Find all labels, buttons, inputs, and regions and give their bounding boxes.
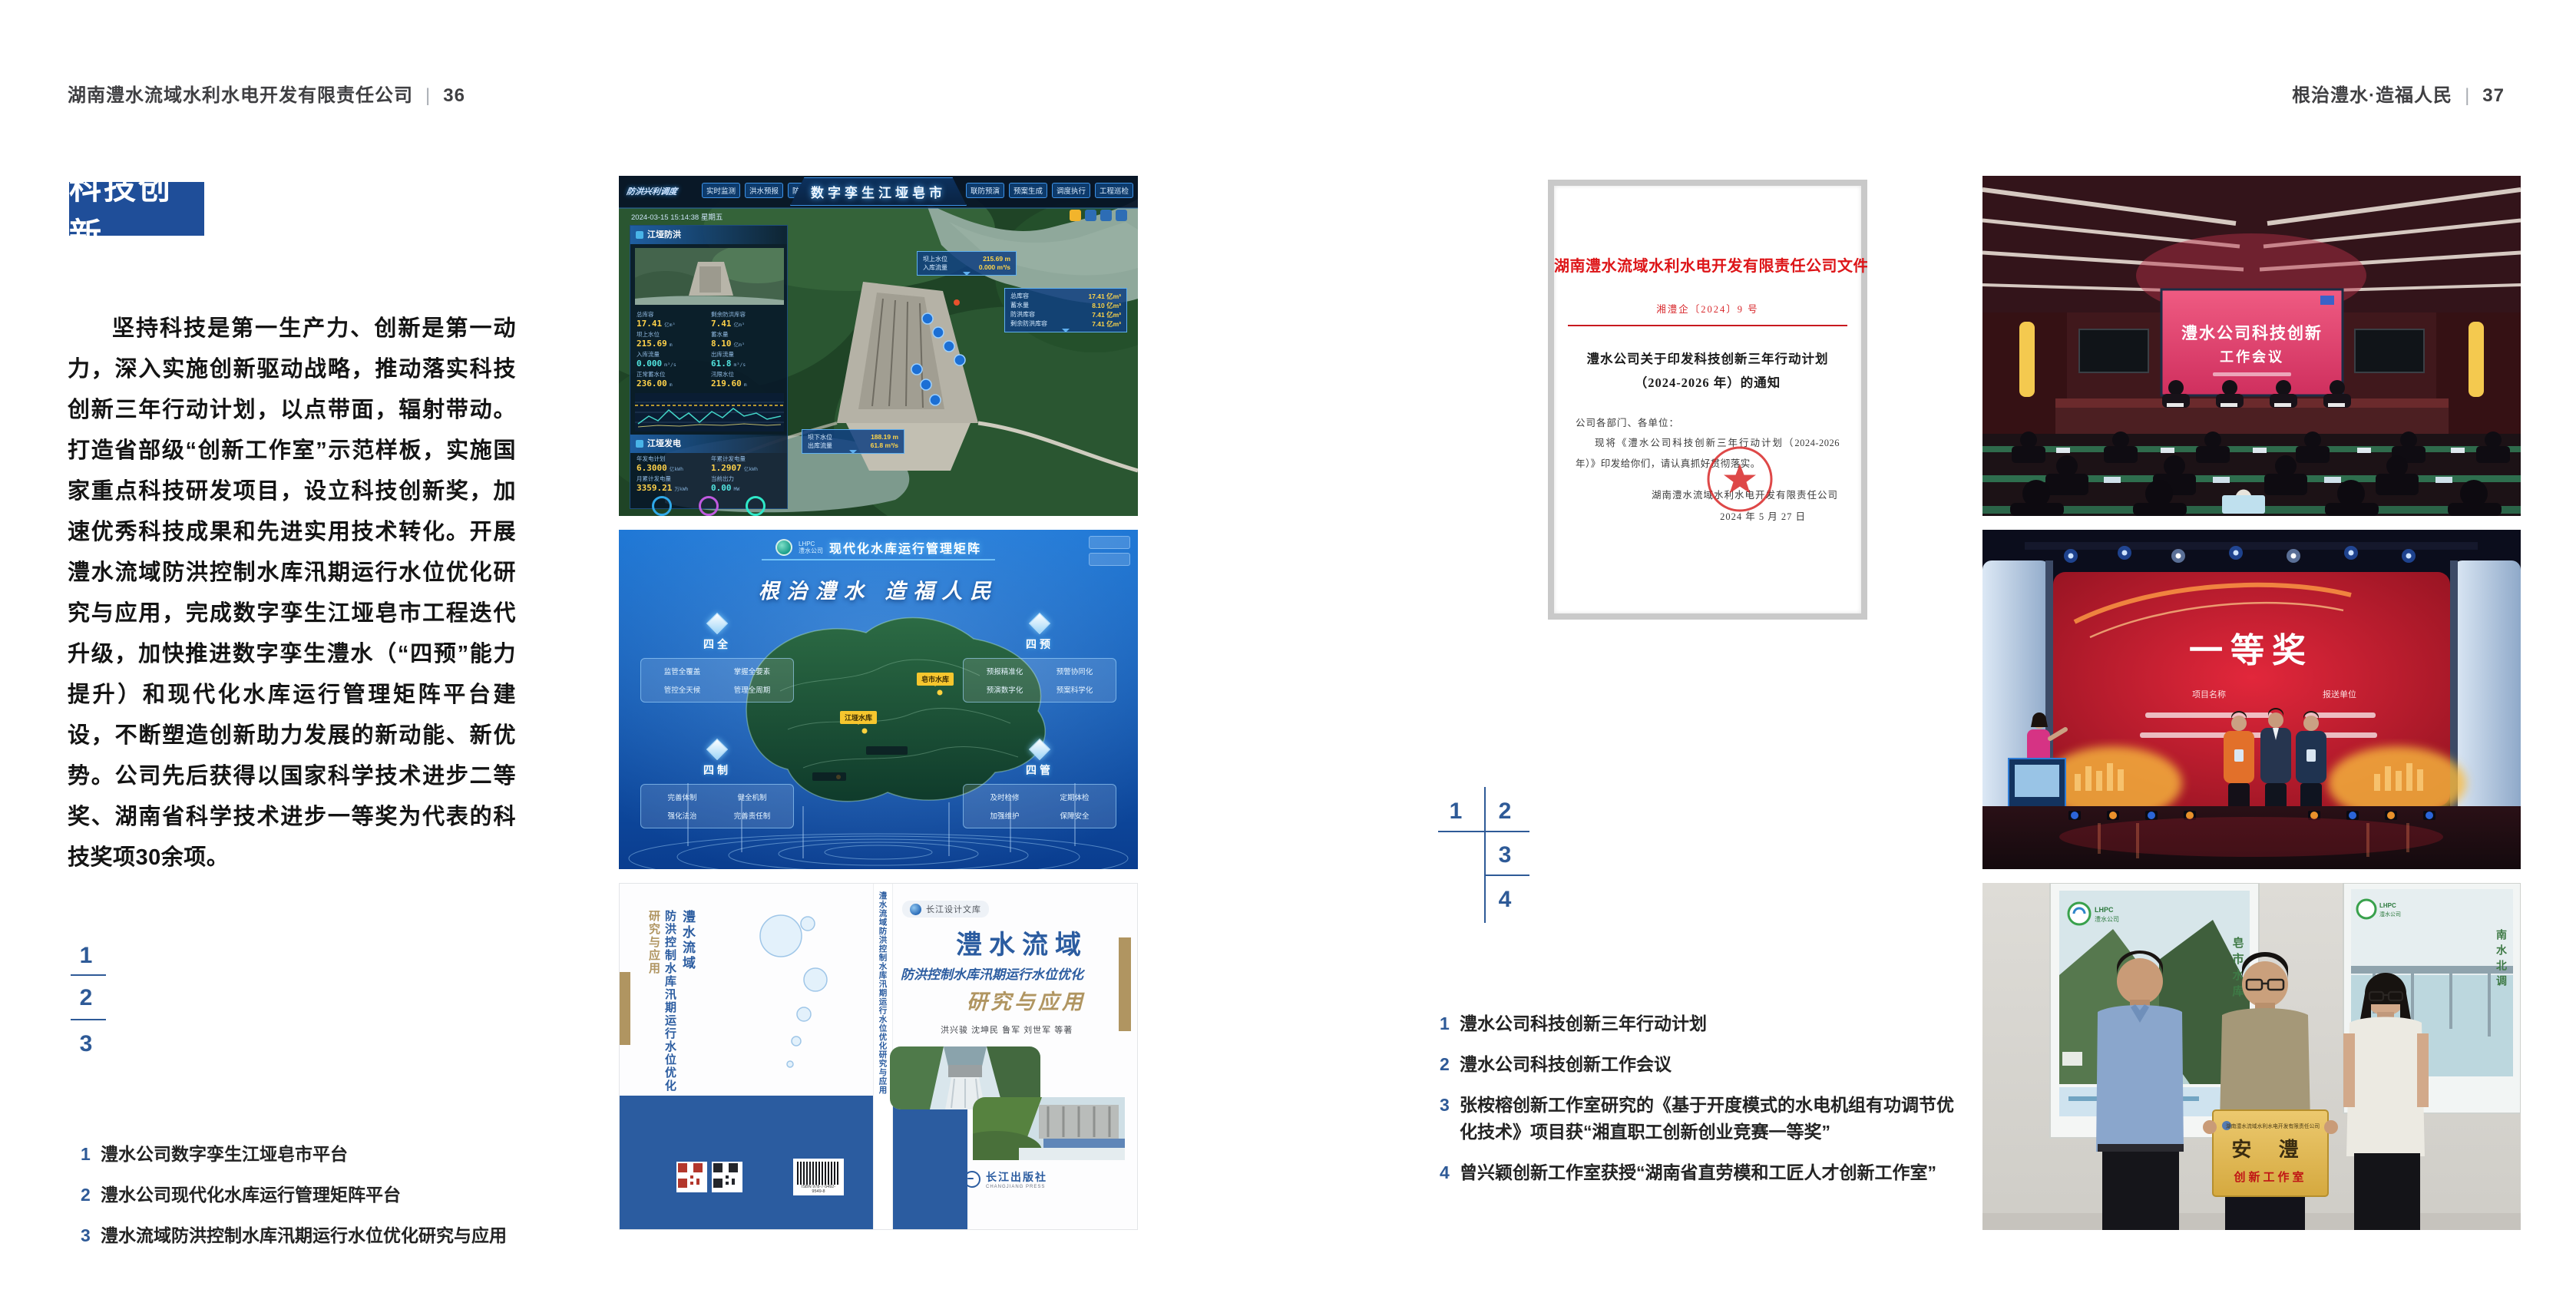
- power-stats: 年发电计划6.3000亿kWh 年累计发电量1.2907亿kWh 月累计发电量3…: [630, 453, 787, 494]
- stat-unit: m: [744, 382, 747, 388]
- book-photo-spillway-dam: [973, 1097, 1125, 1160]
- book-title-sub: 防洪控制水库汛期运行水位优化: [901, 964, 1083, 983]
- shield-icon: [1029, 739, 1050, 760]
- qr-code: [676, 1162, 707, 1192]
- group-item: 预报精准化: [970, 666, 1040, 676]
- publisher-logo: 长江出版社 CHANGJIANG PRESS: [964, 1169, 1047, 1189]
- series-logo-icon: [910, 904, 921, 915]
- stat-label: 当前出力: [711, 474, 781, 483]
- tab-joint-drill[interactable]: 联防预演: [966, 183, 1004, 198]
- barcode: ISBN 978-7-5492-9549-8: [793, 1159, 844, 1195]
- stat-label: 年发电计划: [637, 455, 706, 463]
- map-marker-small: [812, 772, 846, 781]
- tooltip-upstream: 坝上水位215.69 m 入库流量0.000 m³/s: [917, 251, 1017, 276]
- stat-value: 7.41: [711, 319, 732, 329]
- matrix-header: LHPC澧水公司 现代化水库运行管理矩阵: [762, 536, 995, 560]
- stat-unit: 万kWh: [674, 486, 688, 492]
- publisher-icon: [964, 1171, 980, 1188]
- document-red-header: 湖南澧水流域水利水电开发有限责任公司文件: [1554, 253, 1861, 276]
- caption-text: 澧水公司科技创新工作会议: [1460, 1051, 1957, 1078]
- photo-award-ceremony: 一等奖 项目名称 报送单位: [1982, 530, 2521, 869]
- dashboard-title: 数字孪生江垭皂市: [790, 177, 967, 206]
- poster-lhpc-abbr: LHPC: [2379, 902, 2396, 909]
- matrix-group-siyu: 四预 预报精准化 预警协同化 预演数字化 预案科学化: [963, 616, 1116, 703]
- dashboard-icon-cluster: [1070, 210, 1127, 221]
- group-item: 完善体制: [647, 792, 717, 802]
- document-number: 湘澧企〔2024〕9 号: [1554, 301, 1861, 316]
- figure-marker-3: 3: [1493, 843, 1517, 868]
- group-panel: 监管全覆盖 掌握全要素 管控全天候 管理全周期: [640, 658, 794, 703]
- stat-unit: 亿kWh: [670, 466, 683, 472]
- matrix-group-siguan: 四管 及时检修 定期体检 加强维护 保障安全: [963, 742, 1116, 828]
- group-item: 及时检修: [970, 792, 1040, 802]
- caption-text: 澧水公司数字孪生江垭皂市平台: [101, 1141, 348, 1168]
- user-icon[interactable]: [1070, 210, 1081, 221]
- group-item: 预案科学化: [1040, 684, 1109, 695]
- stat-value: 61.8: [711, 359, 732, 369]
- matrix-group-sizhi: 四制 完善体制 健全机制 强化法治 完善责任制: [640, 742, 794, 828]
- group-name: 四全: [640, 636, 794, 652]
- caption-row: 3 张桉榕创新工作室研究的《基于开度模式的水电机组有功调节优化技术》项目获“湘直…: [1440, 1092, 1981, 1146]
- stat-value: 6.3000: [637, 463, 667, 473]
- plaque-org-line: 湖南澧水流域水利水电开发有限责任公司: [2226, 1122, 2320, 1129]
- stat-unit: 亿m³: [734, 322, 745, 328]
- stat-unit: m³/s: [664, 362, 676, 368]
- book-authors: 洪兴骏 沈坤民 鲁军 刘世军 等著: [941, 1023, 1073, 1036]
- group-name: 四制: [640, 762, 794, 778]
- caption-row: 2 澧水公司现代化水库运行管理矩阵平台: [81, 1182, 664, 1208]
- group-item: 健全机制: [717, 792, 787, 802]
- header-separator: |: [2465, 85, 2470, 106]
- figure-marker-line: [1484, 875, 1529, 876]
- layers-icon[interactable]: [1085, 210, 1096, 221]
- figure-marker-1: 1: [1443, 799, 1468, 824]
- caption-text: 张桉榕创新工作室研究的《基于开度模式的水电机组有功调节优化技术》项目获“湘直职工…: [1460, 1092, 1957, 1146]
- group-item: 监管全覆盖: [647, 666, 717, 676]
- series-badge: 长江设计文库: [902, 901, 989, 918]
- group-item: 加强维护: [970, 810, 1040, 821]
- group-item: 定期体检: [1040, 792, 1109, 802]
- stat-unit: 亿kWh: [744, 466, 758, 472]
- page-number-right: 37: [2482, 85, 2505, 106]
- group-panel: 预报精准化 预警协同化 预演数字化 预案科学化: [963, 658, 1116, 703]
- conference-screen-line2: 工作会议: [2220, 349, 2284, 365]
- panel-power-title: 江垭发电: [630, 435, 787, 453]
- group-panel: 完善体制 健全机制 强化法治 完善责任制: [640, 784, 794, 828]
- tab-project-inspect[interactable]: 工程巡检: [1095, 183, 1133, 198]
- caption-text: 澧水公司现代化水库运行管理矩阵平台: [101, 1182, 401, 1208]
- matrix-slogan: 根治澧水 造福人民: [619, 574, 1138, 604]
- lhpc-logo-icon: [775, 539, 792, 556]
- stat-unit: 亿m³: [664, 322, 675, 328]
- caption-text: 曾兴颖创新工作室获授“湖南省直劳模和工匠人才创新工作室”: [1460, 1159, 1957, 1186]
- group-item: 预警协同化: [1040, 666, 1109, 676]
- figure-marker-2: 2: [1493, 799, 1517, 824]
- tip-label: 出库流量: [808, 441, 832, 450]
- document-paper: 湖南澧水流域水利水电开发有限责任公司文件 湘澧企〔2024〕9 号 澧水公司关于…: [1554, 186, 1861, 613]
- dashboard-datetime: 2024-03-15 15:14:38 星期五: [631, 211, 723, 222]
- photo-innovation-conference: 澧水公司科技创新 工作会议: [1982, 176, 2521, 516]
- plaque-board: 湖南澧水流域水利水电开发有限责任公司 安 澧 创新工作室: [2203, 1110, 2338, 1196]
- tab-flood-forecast[interactable]: 洪水预报: [745, 183, 783, 198]
- book-title-tail: 研究与应用: [967, 985, 1086, 1015]
- stat-value: 8.10: [711, 339, 732, 349]
- stat-label: 正常蓄水位: [637, 370, 706, 379]
- group-panel: 及时检修 定期体检 加强维护 保障安全: [963, 784, 1116, 828]
- caption-row: 1 澧水公司科技创新三年行动计划: [1440, 1010, 1981, 1037]
- alert-icon[interactable]: [1116, 210, 1127, 221]
- caption-number: 2: [1440, 1051, 1460, 1078]
- stat-label: 汛限水位: [711, 370, 781, 379]
- tooltip-reservoir: 总库容17.41 亿m³ 蓄水量8.10 亿m³ 防洪库容7.41 亿m³ 剩余…: [1004, 288, 1127, 332]
- stat-value: 236.00: [637, 379, 667, 388]
- tip-label: 剩余防洪库容: [1010, 319, 1047, 329]
- map-marker-zaoshi[interactable]: 皂市水库: [917, 673, 954, 686]
- tab-dispatch-execute[interactable]: 调度执行: [1052, 183, 1090, 198]
- stat-value: 0.00: [711, 483, 732, 493]
- stat-label: 剩余防洪库容: [711, 310, 781, 319]
- spine-title: 澧水流域防洪控制水库汛期运行水位优化研究与应用: [878, 891, 889, 1095]
- panel-toggle-button[interactable]: [1089, 536, 1130, 549]
- stat-label: 蓄水量: [711, 330, 781, 339]
- caption-number: 3: [81, 1222, 101, 1249]
- caption-text: 澧水公司科技创新三年行动计划: [1460, 1010, 1957, 1037]
- figure-marker-1: 1: [68, 944, 104, 968]
- series-name: 长江设计文库: [926, 903, 981, 915]
- building-icon: [706, 739, 728, 760]
- left-page-header: 湖南澧水流域水利水电开发有限责任公司|36: [68, 80, 465, 107]
- caption-number: 2: [81, 1182, 101, 1208]
- dam-video-thumbnail[interactable]: [635, 248, 782, 305]
- document-red-rule: [1568, 325, 1847, 326]
- nav-toggle-button[interactable]: [1089, 553, 1130, 566]
- figure-management-matrix: LHPC澧水公司 现代化水库运行管理矩阵 根治澧水 造福人民 四全 监管全覆盖 …: [619, 530, 1138, 869]
- award-winners: [2224, 708, 2326, 818]
- group-item: 管控全天候: [647, 684, 717, 695]
- figure-official-document: 湖南澧水流域水利水电开发有限责任公司文件 湘澧企〔2024〕9 号 澧水公司关于…: [1548, 180, 1867, 620]
- tip-value: 188.19 m: [871, 433, 898, 441]
- intro-paragraph: 坚持科技是第一生产力、创新是第一动力，深入实施创新驱动战略，推动落实科技创新三年…: [68, 309, 516, 878]
- group-item: 保障安全: [1040, 810, 1109, 821]
- plaque-workshop: 创新工作室: [2233, 1170, 2306, 1184]
- stat-unit: m³/s: [734, 362, 746, 368]
- caption-number: 1: [81, 1141, 101, 1168]
- book-tan-bar: [1119, 937, 1131, 1031]
- book-tan-tab: [620, 972, 630, 1045]
- stat-label: 总库容: [637, 310, 706, 319]
- figure-divider: [71, 1019, 106, 1020]
- group-item: 完善责任制: [717, 810, 787, 821]
- stat-unit: 亿m³: [734, 342, 745, 348]
- right-captions: 1 澧水公司科技创新三年行动计划 2 澧水公司科技创新工作会议 3 张桉榕创新工…: [1440, 1010, 1981, 1200]
- caption-number: 4: [1440, 1159, 1460, 1186]
- stat-label: 坝上水位: [637, 330, 706, 339]
- award-column-right: 报送单位: [2323, 689, 2356, 699]
- poster-left-caption: 皂市水库: [2231, 936, 2244, 1001]
- tip-value: 7.41 亿m³: [1092, 319, 1121, 329]
- tip-label: 入库流量: [923, 263, 947, 272]
- tip-value: 17.41 亿m³: [1088, 292, 1121, 301]
- stat-label: 年累计发电量: [711, 455, 781, 463]
- spine-publisher: 长江出版社: [879, 1194, 888, 1225]
- tip-value: 215.69 m: [983, 255, 1010, 263]
- brochure-spread: 湖南澧水流域水利水电开发有限责任公司|36 根治澧水·造福人民|37 科技创新 …: [0, 0, 2576, 1306]
- award-column-left: 项目名称: [2192, 689, 2226, 699]
- section-badge: 科技创新: [69, 182, 204, 236]
- generator-donuts: 0.00 102.98 0.00: [630, 494, 787, 516]
- tip-value: 7.41 亿m³: [1092, 310, 1121, 319]
- donut-ring: [746, 496, 766, 516]
- flag-icon: [1029, 613, 1050, 634]
- conference-screen-line1: 澧水公司科技创新: [2181, 324, 2323, 342]
- group-item: 掌握全要素: [717, 666, 787, 676]
- matrix-group-siquan: 四全 监管全覆盖 掌握全要素 管控全天候 管理全周期: [640, 616, 794, 703]
- figure-marker-line: [1438, 831, 1529, 832]
- award-screen-title: 一等奖: [2189, 632, 2313, 670]
- group-item: 管理全周期: [717, 684, 787, 695]
- tip-label: 坝下水位: [808, 433, 832, 441]
- stat-label: 入库流量: [637, 350, 706, 359]
- official-seal: [1705, 444, 1775, 514]
- tab-realtime-monitor[interactable]: 实时监测: [702, 183, 740, 198]
- lhpc-logo-text: LHPC澧水公司: [799, 541, 823, 554]
- flood-stats: 总库容17.41亿m³ 剩余防洪库容7.41亿m³ 坝上水位215.69m 蓄水…: [630, 309, 787, 390]
- stat-unit: m: [670, 382, 673, 388]
- stat-value: 17.41: [637, 319, 662, 329]
- caption-number: 3: [1440, 1092, 1460, 1146]
- figure-marker-4: 4: [1493, 888, 1517, 912]
- caption-row: 4 曾兴颖创新工作室获授“湖南省直劳模和工匠人才创新工作室”: [1440, 1159, 1981, 1186]
- panel-flood-title: 江垭防洪: [630, 226, 787, 244]
- map-marker-jiangya[interactable]: 江垭水库: [840, 711, 877, 724]
- group-name: 四管: [963, 762, 1116, 778]
- dashboard-module-label: 防洪兴利调度: [626, 185, 678, 197]
- dashboard-left-panel: 江垭防洪 总库容17.41亿m³ 剩余防洪库容7.41亿m³ 坝上水位215.6…: [630, 225, 788, 509]
- poster-lhpc-name: 澧水公司: [2379, 911, 2401, 918]
- figure-book-cover: 澧水流域 防洪控制水库汛期运行水位优化 研究与应用 ISBN 978-7-549…: [619, 883, 1138, 1230]
- group-name: 四预: [963, 636, 1116, 652]
- caption-row: 1 澧水公司数字孪生江垭皂市平台: [81, 1141, 664, 1168]
- caption-row: 3 澧水流域防洪控制水库汛期运行水位优化研究与应用: [81, 1222, 664, 1249]
- figure-marker-3: 3: [68, 1032, 104, 1056]
- figure-digital-twin-dashboard: 防洪兴利调度 实时监测 洪水预报 防洪预警 数字孪生江垭皂市 联防预演 预案生成…: [619, 176, 1138, 516]
- caption-row: 2 澧水公司科技创新工作会议: [1440, 1051, 1981, 1078]
- caption-number: 1: [1440, 1010, 1460, 1037]
- document-salutation: 公司各部门、各单位：: [1576, 415, 1679, 429]
- matrix-title: 现代化水库运行管理矩阵: [829, 538, 981, 557]
- document-title-line1: 澧水公司关于印发科技创新三年行动计划: [1554, 349, 1861, 367]
- stat-label: 月累计发电量: [637, 474, 706, 483]
- stat-value: 0.000: [637, 359, 662, 369]
- stat-label: 出库流量: [711, 350, 781, 359]
- water-droplets: [735, 907, 881, 1099]
- tip-value: 0.000 m³/s: [979, 263, 1010, 272]
- donut-ring: [652, 496, 672, 516]
- poster-right-caption: 南水北调: [2495, 928, 2508, 990]
- back-cover-title: 澧水流域 防洪控制水库汛期运行水位优化 研究与应用: [646, 910, 697, 1094]
- poster-lhpc-name: 澧水公司: [2095, 915, 2119, 923]
- caption-text: 澧水流域防洪控制水库汛期运行水位优化研究与应用: [101, 1222, 507, 1249]
- document-title-line2: （2024-2026 年）的通知: [1554, 372, 1861, 391]
- locate-icon[interactable]: [1100, 210, 1112, 221]
- stat-value: 215.69: [637, 339, 667, 349]
- water-level-chart: [635, 393, 782, 431]
- publisher-name: 长江出版社: [986, 1169, 1047, 1185]
- group-item: 强化法治: [647, 810, 717, 821]
- header-separator: |: [425, 85, 431, 106]
- tip-label: 蓄水量: [1010, 301, 1029, 310]
- slogan: 根治澧水·造福人民: [2292, 85, 2452, 106]
- donut-ring: [699, 496, 719, 516]
- stat-value: 219.60: [711, 379, 742, 388]
- stat-value: 1.2907: [711, 463, 742, 473]
- book-title-main: 澧水流域: [956, 924, 1088, 961]
- tip-label: 总库容: [1010, 292, 1029, 301]
- right-page-header: 根治澧水·造福人民|37: [2292, 80, 2505, 107]
- poster-lhpc-abbr: LHPC: [2095, 906, 2114, 914]
- map-marker-small: [866, 746, 908, 755]
- page-number-left: 36: [443, 85, 465, 106]
- tip-label: 防洪库容: [1010, 310, 1035, 319]
- stat-unit: MW: [734, 486, 740, 492]
- stat-unit: m: [670, 342, 673, 348]
- cube-icon: [706, 613, 728, 634]
- figure-marker-line: [1484, 787, 1486, 923]
- tab-plan-generate[interactable]: 预案生成: [1009, 183, 1047, 198]
- figure-divider: [71, 974, 106, 976]
- qr-code: [712, 1162, 742, 1192]
- dashboard-tabs-right: 联防预演 预案生成 调度执行 工程巡检: [966, 183, 1133, 198]
- tip-value: 8.10 亿m³: [1092, 301, 1121, 310]
- company-name: 湖南澧水流域水利水电开发有限责任公司: [68, 85, 413, 106]
- left-captions: 1 澧水公司数字孪生江垭皂市平台 2 澧水公司现代化水库运行管理矩阵平台 3 澧…: [81, 1141, 664, 1263]
- plaque-name: 安 澧: [2231, 1138, 2309, 1161]
- group-item: 预演数字化: [970, 684, 1040, 695]
- stat-value: 3359.21: [637, 483, 672, 493]
- photo-workshop-plaque: LHPC 澧水公司 皂市水库 LHPC 澧水公司 南水北调: [1982, 883, 2521, 1230]
- tip-label: 坝上水位: [923, 255, 947, 263]
- figure-marker-2: 2: [68, 986, 104, 1010]
- publisher-name-en: CHANGJIANG PRESS: [986, 1185, 1047, 1189]
- tip-value: 61.8 m³/s: [871, 441, 898, 450]
- tooltip-downstream: 坝下水位188.19 m 出库流量61.8 m³/s: [802, 429, 904, 454]
